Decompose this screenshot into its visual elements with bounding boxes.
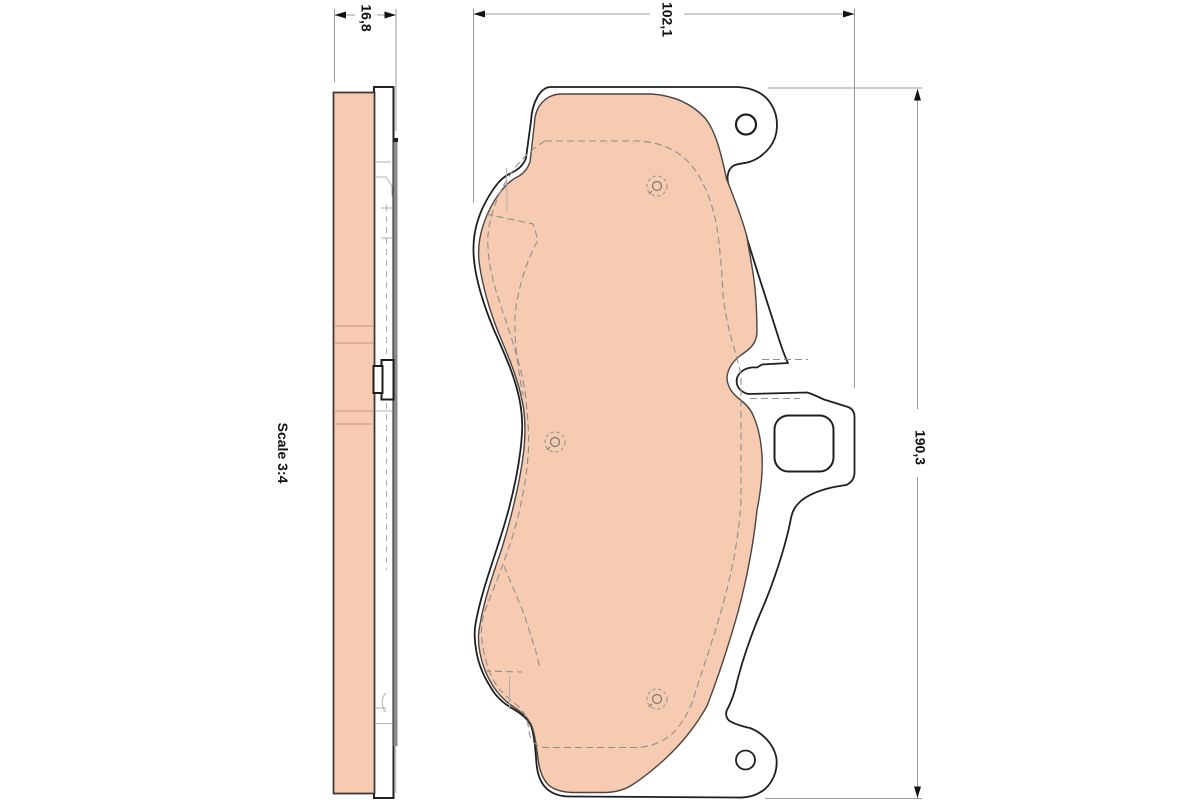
svg-text:Scale 3:4: Scale 3:4 bbox=[275, 423, 291, 484]
svg-text:102,1: 102,1 bbox=[659, 2, 675, 37]
svg-text:190,3: 190,3 bbox=[912, 430, 928, 465]
svg-text:16,8: 16,8 bbox=[358, 4, 374, 31]
